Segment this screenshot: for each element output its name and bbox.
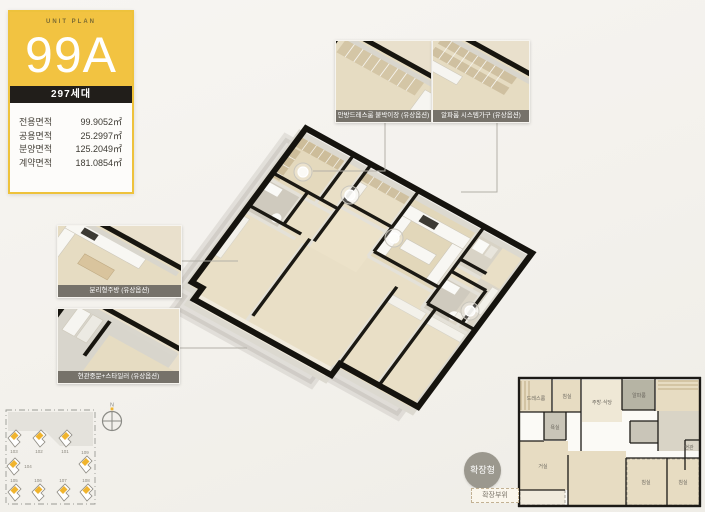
svg-text:드레스룸: 드레스룸	[527, 395, 546, 402]
households-badge: 297세대	[10, 86, 132, 103]
area-value: 25.2997㎡	[80, 130, 122, 144]
callout-dressroom-closet: 안방드레스룸 붙박이장 (유상옵션)	[335, 40, 432, 123]
svg-text:105: 105	[10, 478, 18, 483]
svg-text:N: N	[110, 403, 114, 409]
kitchen-render	[58, 226, 181, 285]
area-table: 전용면적 99.9052㎡ 공용면적 25.2997㎡ 분양면적 125.204…	[10, 103, 132, 192]
mini-2d-plan: 드레스룸 침실 주방·식당 알파룸 욕실 거실 침실 침실 현관	[517, 376, 702, 508]
room-balcony	[188, 293, 334, 380]
svg-text:109: 109	[81, 450, 89, 455]
area-row: 공용면적 25.2997㎡	[10, 130, 132, 144]
svg-text:106: 106	[34, 478, 42, 483]
svg-text:102: 102	[35, 449, 43, 454]
room-bath2	[421, 276, 480, 328]
area-value: 99.9052㎡	[80, 116, 122, 130]
room-utility	[454, 231, 504, 278]
room-dressroom	[267, 133, 348, 204]
callout-label: 안방드레스룸 붙박이장 (유상옵션)	[336, 110, 431, 122]
site-plan: 103 102 101 104 109 105 106 107 108 N	[6, 403, 122, 505]
compass-icon: N	[103, 403, 122, 431]
callout-alpharoom-furniture: 알파룸 시스템가구 (유상옵션)	[432, 40, 530, 123]
unit-info-card: UNIT PLAN 99A 297세대 전용면적 99.9052㎡ 공용면적 2…	[8, 10, 134, 194]
svg-text:104: 104	[24, 464, 32, 469]
area-row: 전용면적 99.9052㎡	[10, 116, 132, 130]
svg-text:욕실: 욕실	[550, 424, 560, 431]
area-row: 계약면적 181.0854㎡	[10, 157, 132, 171]
area-label: 분양면적	[19, 143, 52, 157]
callout-label: 알파룸 시스템가구 (유상옵션)	[433, 110, 529, 122]
dressroom-closet-render	[336, 41, 431, 110]
alpharoom-render	[433, 41, 529, 110]
unit-plan-label: UNIT PLAN	[10, 19, 132, 25]
svg-text:108: 108	[82, 478, 90, 483]
room-master-bath	[243, 178, 302, 230]
area-value: 181.0854㎡	[75, 157, 122, 171]
area-value: 125.2049㎡	[75, 143, 122, 157]
svg-text:주방·식당: 주방·식당	[592, 399, 612, 406]
callout-kitchen: 분리형주방 (유상옵션)	[57, 225, 182, 298]
option-markers	[294, 163, 479, 320]
expansion-area-legend: 확장부위	[471, 488, 519, 503]
entrance-styler-render	[58, 309, 179, 371]
callout-entrance-styler: 현관중문+스타일러 (유상옵션)	[57, 308, 180, 384]
callout-leader-lines	[178, 121, 497, 348]
svg-text:침실: 침실	[678, 479, 688, 486]
area-row: 분양면적 125.2049㎡	[10, 143, 132, 157]
callout-label: 현관중문+스타일러 (유상옵션)	[58, 371, 179, 383]
furniture	[213, 136, 523, 377]
area-label: 전용면적	[19, 116, 52, 130]
svg-text:103: 103	[10, 449, 18, 454]
svg-text:거실: 거실	[538, 463, 548, 470]
svg-text:침실: 침실	[641, 479, 651, 486]
expansion-type-badge: 확장형	[464, 452, 501, 489]
svg-text:현관: 현관	[684, 444, 694, 451]
iso-floorplan	[163, 123, 532, 433]
unit-name: 99A	[10, 26, 132, 84]
room-entrance	[447, 278, 502, 335]
svg-text:101: 101	[61, 449, 69, 454]
area-label: 계약면적	[19, 157, 52, 171]
wall-caps	[184, 128, 533, 418]
callout-label: 분리형주방 (유상옵션)	[58, 285, 181, 297]
svg-text:107: 107	[59, 478, 67, 483]
area-label: 공용면적	[19, 130, 52, 144]
unit-plan-page: { "unit_card": { "header_label": "UNIT P…	[0, 0, 705, 512]
building-numbers: 103 102 101 104 109 105 106 107 108	[10, 449, 90, 483]
svg-text:알파룸: 알파룸	[632, 392, 646, 399]
room-hall	[308, 205, 386, 272]
mini-plan-labels: 드레스룸 침실 주방·식당 알파룸 욕실 거실 침실 침실 현관	[527, 392, 694, 486]
svg-text:침실: 침실	[562, 393, 572, 400]
room-kitchen	[368, 195, 478, 292]
